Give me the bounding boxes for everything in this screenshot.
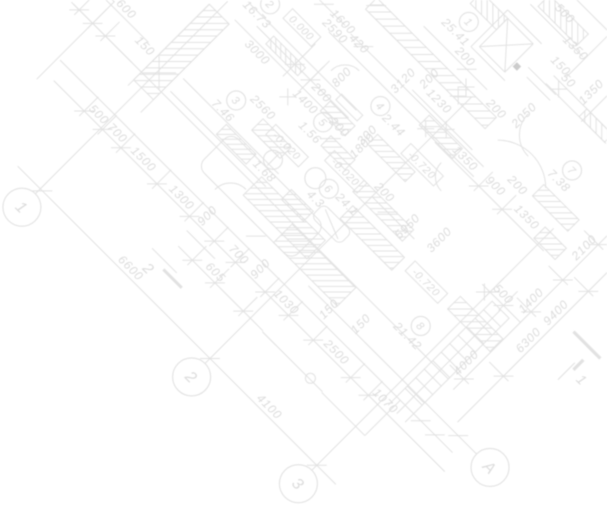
svg-text:3: 3	[229, 94, 242, 107]
svg-text:7: 7	[565, 164, 578, 177]
svg-text:4000: 4000	[450, 347, 481, 378]
svg-text:2: 2	[262, 0, 276, 12]
svg-text:200: 200	[452, 43, 478, 69]
svg-text:150: 150	[132, 33, 158, 59]
svg-text:1.68: 1.68	[250, 157, 279, 186]
svg-text:200: 200	[371, 179, 397, 205]
svg-text:1: 1	[461, 16, 474, 29]
svg-text:200: 200	[504, 172, 530, 198]
svg-text:4: 4	[373, 100, 386, 113]
svg-text:1350: 1350	[511, 202, 542, 233]
svg-text:1: 1	[573, 371, 590, 388]
svg-text:2.44: 2.44	[379, 110, 408, 139]
svg-text:8: 8	[413, 320, 426, 333]
svg-text:150: 150	[316, 296, 342, 322]
svg-text:200: 200	[416, 66, 442, 92]
svg-text:2050: 2050	[508, 100, 540, 132]
svg-text:2: 2	[181, 368, 201, 388]
svg-text:150: 150	[348, 311, 374, 337]
svg-text:3600: 3600	[424, 224, 455, 255]
svg-text:A: A	[478, 458, 499, 479]
svg-text:1350: 1350	[450, 143, 481, 174]
svg-text:900: 900	[483, 173, 509, 199]
svg-text:3: 3	[288, 475, 307, 494]
svg-text:700: 700	[226, 242, 252, 268]
svg-text:5950: 5950	[392, 211, 423, 242]
svg-text:500: 500	[552, 1, 578, 27]
svg-text:605: 605	[203, 259, 229, 285]
svg-text:2560: 2560	[247, 91, 279, 123]
svg-text:1: 1	[12, 199, 31, 218]
